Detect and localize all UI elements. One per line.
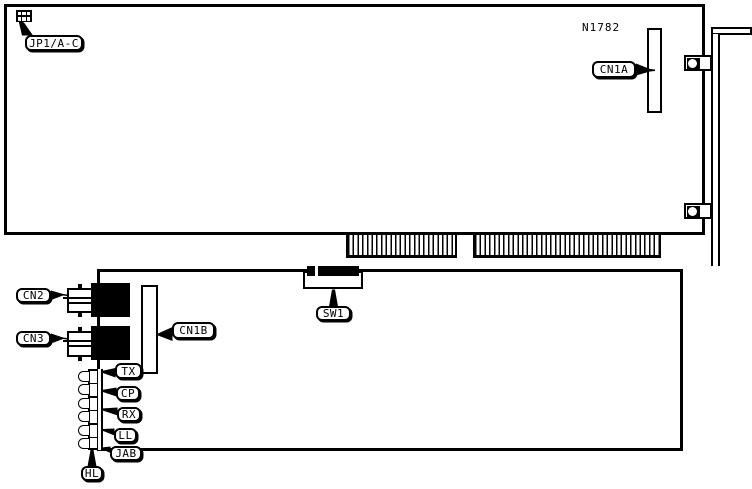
cn3-pin xyxy=(67,345,91,347)
connector-cn2-body xyxy=(91,283,130,317)
connector-cn3-body xyxy=(91,326,130,360)
callout-cn1b-label: CN1B xyxy=(179,325,208,336)
jumper-block-jp1 xyxy=(16,10,32,22)
callout-cn3: CN3 xyxy=(16,331,51,346)
callout-cn1b: CN1B xyxy=(172,322,215,339)
connector-cn2-receptacle xyxy=(67,288,93,313)
callout-ll-label: LL xyxy=(118,430,132,441)
callout-cn3-label: CN3 xyxy=(23,333,44,344)
screw-hole-icon xyxy=(688,59,697,68)
edge-connector-fingers-left xyxy=(346,235,457,258)
led-hl-dome xyxy=(78,438,89,449)
callout-jab-label: JAB xyxy=(115,448,136,459)
led-jab-dome xyxy=(78,425,89,436)
led-divider xyxy=(88,437,98,439)
bottom-board-outline xyxy=(97,269,683,451)
led-divider xyxy=(88,410,98,412)
cn3-arrow xyxy=(51,334,67,344)
bracket-body xyxy=(711,34,720,266)
edge-connector-fingers-right xyxy=(473,235,661,258)
led-divider xyxy=(88,383,98,385)
callout-jp1-label: JP1/A-C xyxy=(29,38,79,49)
callout-rx-label: RX xyxy=(122,409,136,420)
callout-cp-label: CP xyxy=(121,388,135,399)
callout-cp: CP xyxy=(116,386,140,401)
cn2-pin xyxy=(63,297,91,299)
cn3-pin xyxy=(63,340,91,342)
callout-rx: RX xyxy=(117,407,141,422)
callout-cn1a: CN1A xyxy=(592,61,636,78)
led-ll-dome xyxy=(78,411,89,422)
cn2-pin xyxy=(67,302,91,304)
led-cp-dome xyxy=(78,384,89,395)
callout-sw1-label: SW1 xyxy=(323,308,344,319)
connector-cn1a xyxy=(647,28,662,113)
callout-tx: TX xyxy=(115,363,142,379)
callout-hl-label: HL xyxy=(85,468,99,479)
led-rx-dome xyxy=(78,398,89,409)
top-board-outline xyxy=(4,4,705,235)
callout-jp1: JP1/A-C xyxy=(25,35,83,51)
board-ref-text: N1782 xyxy=(582,21,620,34)
header-cn1b xyxy=(141,285,158,374)
callout-jab: JAB xyxy=(110,446,142,461)
led-divider xyxy=(88,423,98,425)
cn2-key-bottom xyxy=(78,313,82,317)
bracket-screw-tab-top xyxy=(684,55,712,71)
led-tx-dome xyxy=(78,371,89,382)
callout-sw1: SW1 xyxy=(316,306,351,321)
dip-switch-sw1 xyxy=(307,266,359,276)
callout-hl: HL xyxy=(81,466,103,481)
callout-cn2-label: CN2 xyxy=(23,290,44,301)
hl-arrow xyxy=(88,450,97,467)
led-divider xyxy=(88,396,98,398)
callout-cn2: CN2 xyxy=(16,288,51,303)
screw-hole-icon xyxy=(688,207,697,216)
sw1-divider xyxy=(315,266,318,276)
callout-ll: LL xyxy=(114,428,137,443)
cn2-key-top xyxy=(78,284,82,288)
callout-cn1a-label: CN1A xyxy=(600,64,629,75)
callout-tx-label: TX xyxy=(121,366,135,377)
cn3-key-bottom xyxy=(78,357,82,361)
cn3-key-top xyxy=(78,327,82,331)
bracket-screw-tab-bottom xyxy=(684,203,712,219)
circuit-board-diagram: N1782 xyxy=(0,0,752,489)
